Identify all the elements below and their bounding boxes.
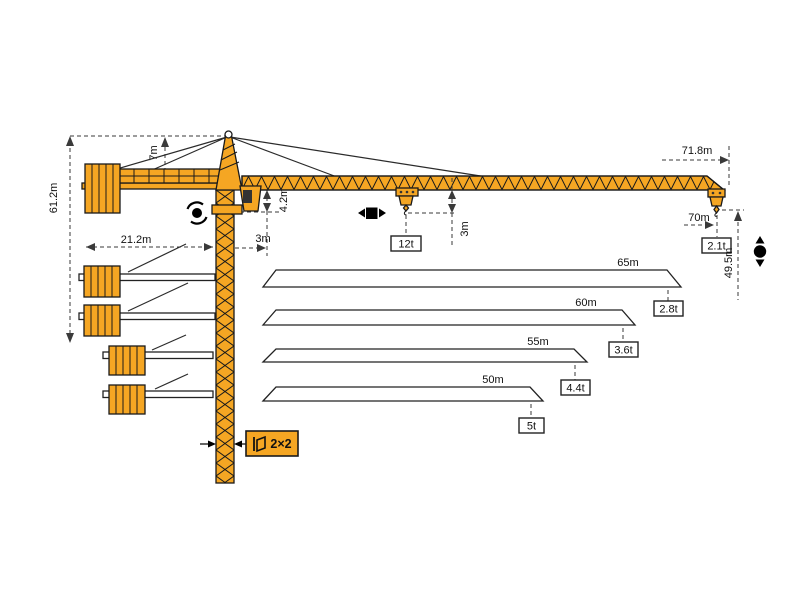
max-jib-length-label: 71.8m xyxy=(682,145,713,157)
main-jib xyxy=(242,176,725,217)
jib-config-50m: 50m 5t xyxy=(263,374,544,433)
jib-depth-label: 4.2m xyxy=(278,188,290,212)
mast-section-label: 2×2 xyxy=(270,437,291,451)
jib-config-55m: 55m 4.4t xyxy=(263,336,590,395)
hook-height-dimension: 49.5m xyxy=(723,211,742,300)
hook-clearance-label: 3m xyxy=(459,221,471,236)
tower-crane-dimension-drawing: 61.2m 7m 21.2m 3m 4.2m xyxy=(0,0,800,600)
min-radius-label: 3m xyxy=(255,233,270,245)
capacity-label: 3.6t xyxy=(614,345,632,357)
jib-length-label: 50m xyxy=(482,374,503,386)
jib-config-60m: 60m 3.6t xyxy=(263,297,638,357)
tower-head xyxy=(216,136,242,190)
trolley-travel-icon xyxy=(358,208,386,220)
counterjib-config-1 xyxy=(79,244,215,297)
turntable xyxy=(212,205,242,214)
slewing-icon xyxy=(188,202,207,223)
jib-length-label: 55m xyxy=(527,336,548,348)
counter-radius-dimension: 21.2m xyxy=(86,234,213,251)
total-height-label: 61.2m xyxy=(48,183,60,214)
jib-config-65m: 65m 2.8t xyxy=(263,257,683,316)
jib-length-label: 65m xyxy=(617,257,638,269)
counter-jib xyxy=(82,164,222,213)
tower-mast xyxy=(212,131,242,483)
height-under-hook-label: 49.5m xyxy=(723,248,735,279)
capacity-label: 4.4t xyxy=(566,383,584,395)
counterjib-configurations xyxy=(79,244,215,414)
cab-window xyxy=(243,190,252,203)
counterjib-config-3 xyxy=(103,335,213,375)
trolley-assembly xyxy=(396,188,418,215)
counterjib-config-4 xyxy=(103,374,213,414)
counter-jib-radius-label: 21.2m xyxy=(121,234,152,246)
operator-cab xyxy=(240,186,261,211)
jib-configurations: 65m 2.8t 60m 3.6t 55m 4.4t 50m 5t xyxy=(263,257,683,433)
counterweight-stack xyxy=(85,164,120,213)
hoisting-icon xyxy=(754,236,766,267)
capacity-label: 2.8t xyxy=(659,304,677,316)
hook-radius-dimension: 70m 2.1t xyxy=(684,210,744,253)
tip-hook-block xyxy=(708,189,725,217)
crane-diagram: 61.2m 7m 21.2m 3m 4.2m xyxy=(0,0,800,600)
apex-pin xyxy=(225,131,232,138)
max-capacity-label: 12t xyxy=(398,239,413,251)
capacity-label: 5t xyxy=(527,421,536,433)
mast-section-callout: 2×2 xyxy=(200,431,298,456)
jib-length-label: 60m xyxy=(575,297,596,309)
